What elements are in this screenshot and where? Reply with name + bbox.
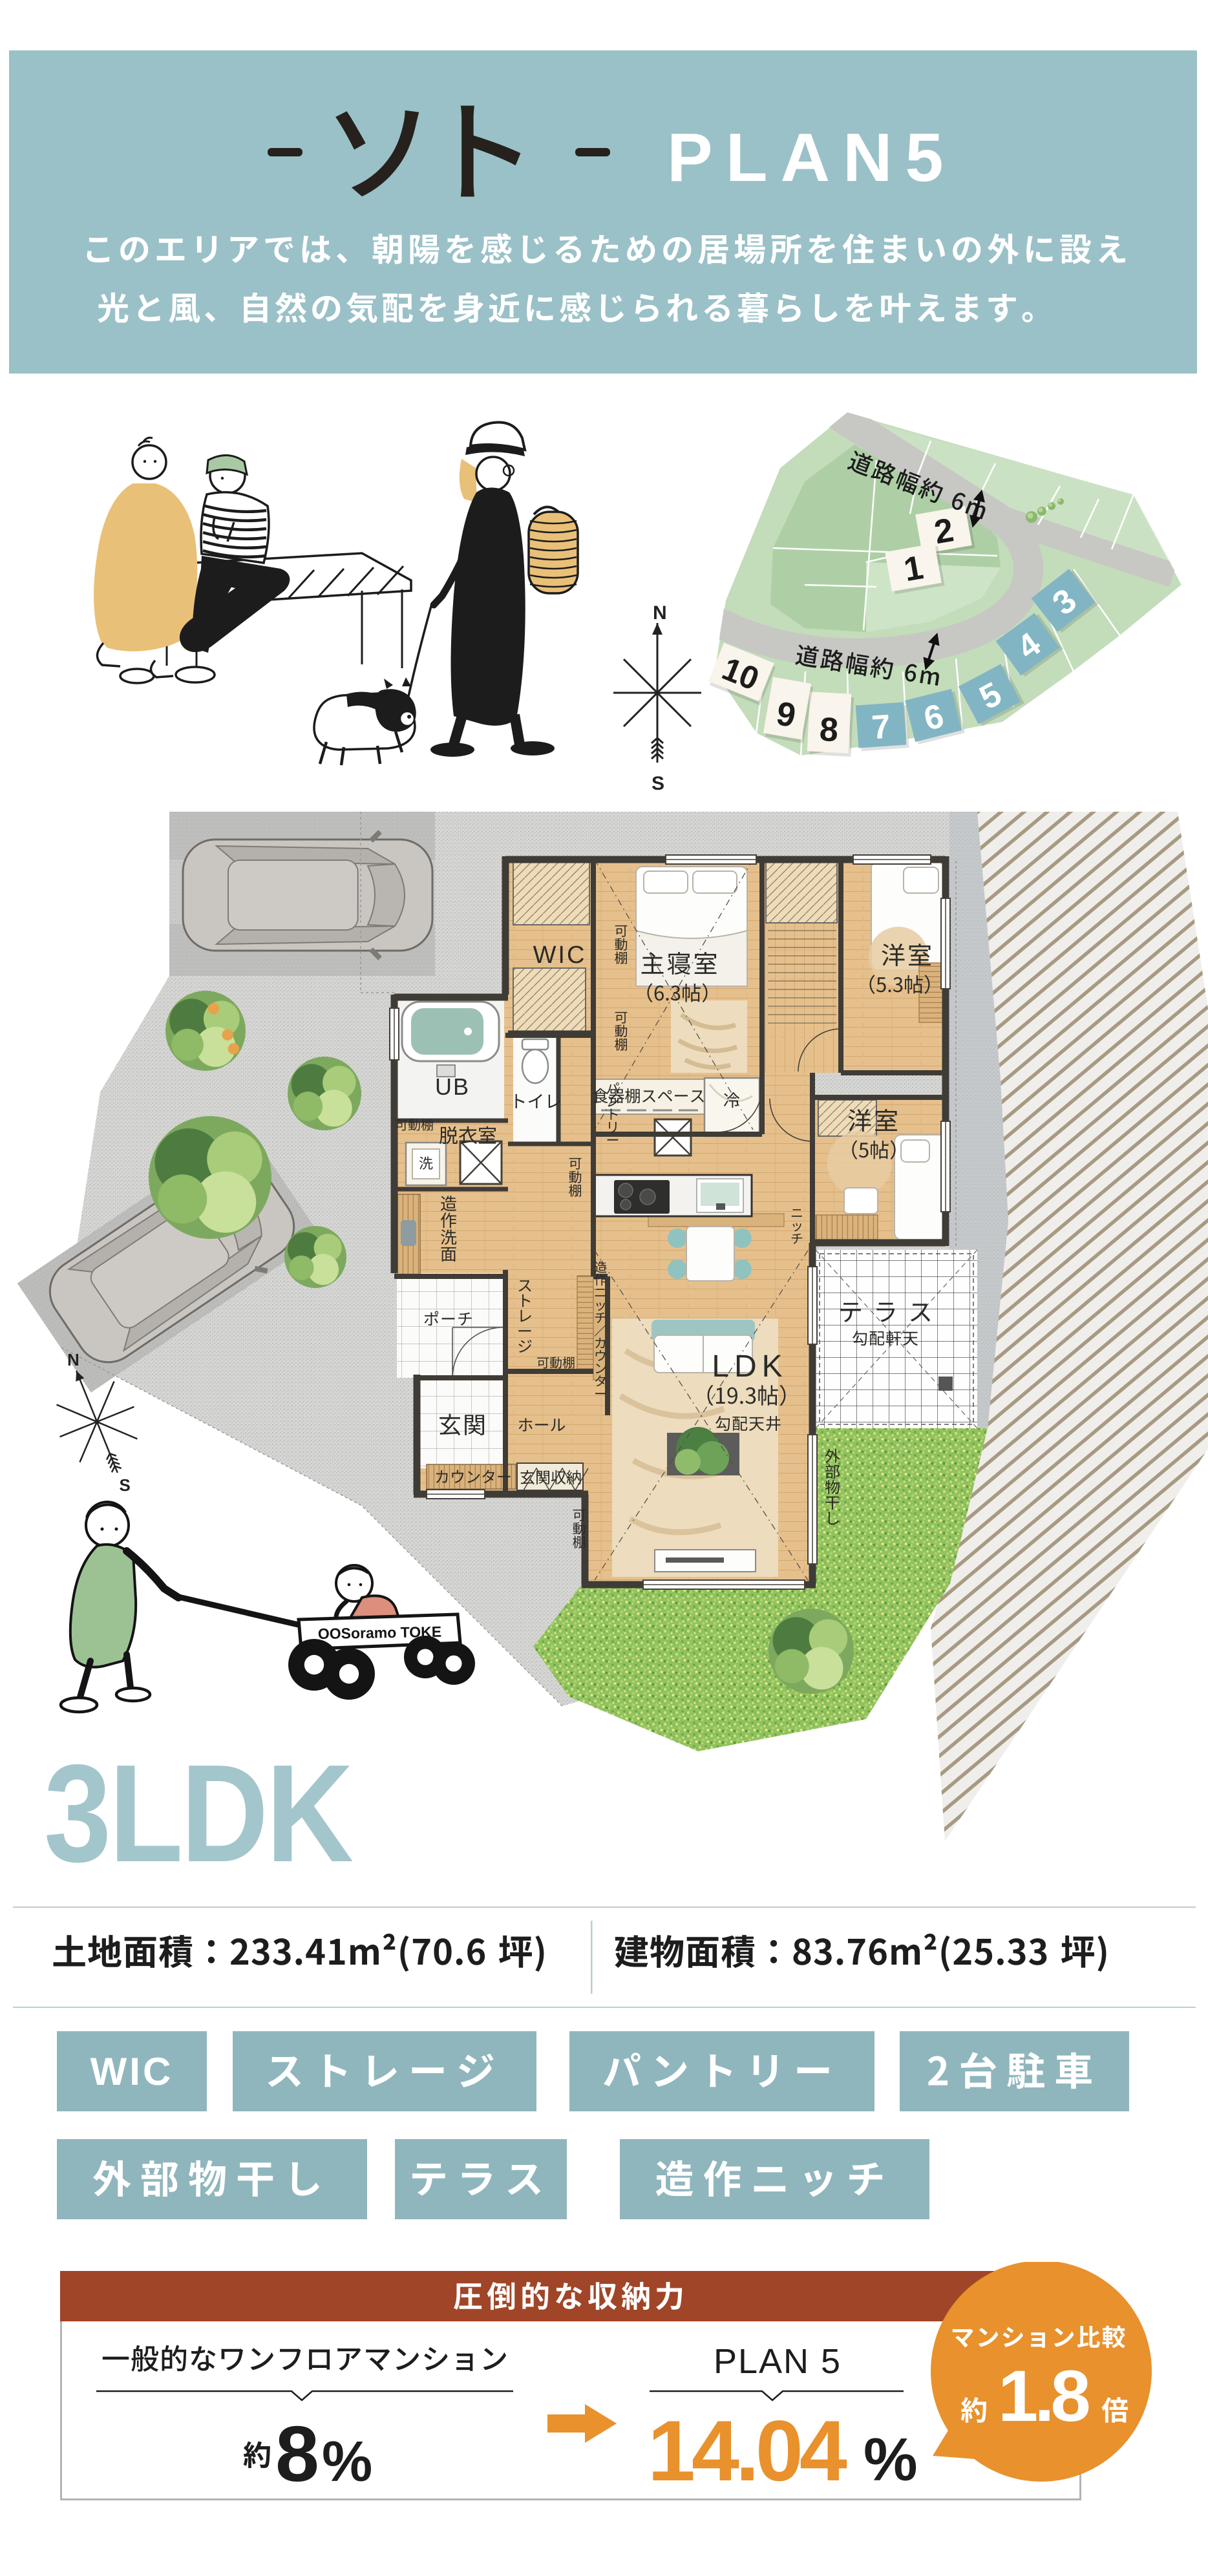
svg-text:S: S bbox=[120, 1475, 131, 1495]
svg-text:8: 8 bbox=[275, 2410, 319, 2498]
svg-text:N: N bbox=[653, 602, 667, 624]
svg-text:%: % bbox=[322, 2429, 372, 2493]
svg-text:LDK: LDK bbox=[712, 1349, 787, 1384]
svg-text:8: 8 bbox=[818, 711, 839, 749]
svg-text:WIC: WIC bbox=[533, 942, 587, 969]
svg-text:7: 7 bbox=[871, 708, 892, 747]
svg-text:PLAN 5: PLAN 5 bbox=[714, 2342, 842, 2381]
svg-text:UB: UB bbox=[435, 1073, 470, 1100]
svg-text:S: S bbox=[652, 773, 664, 794]
svg-text:1.8: 1.8 bbox=[998, 2356, 1088, 2436]
svg-text:N: N bbox=[67, 1350, 79, 1369]
svg-text:14.04: 14.04 bbox=[648, 2403, 847, 2499]
svg-text:%: % bbox=[864, 2425, 918, 2493]
svg-text:PLAN5: PLAN5 bbox=[667, 120, 957, 196]
